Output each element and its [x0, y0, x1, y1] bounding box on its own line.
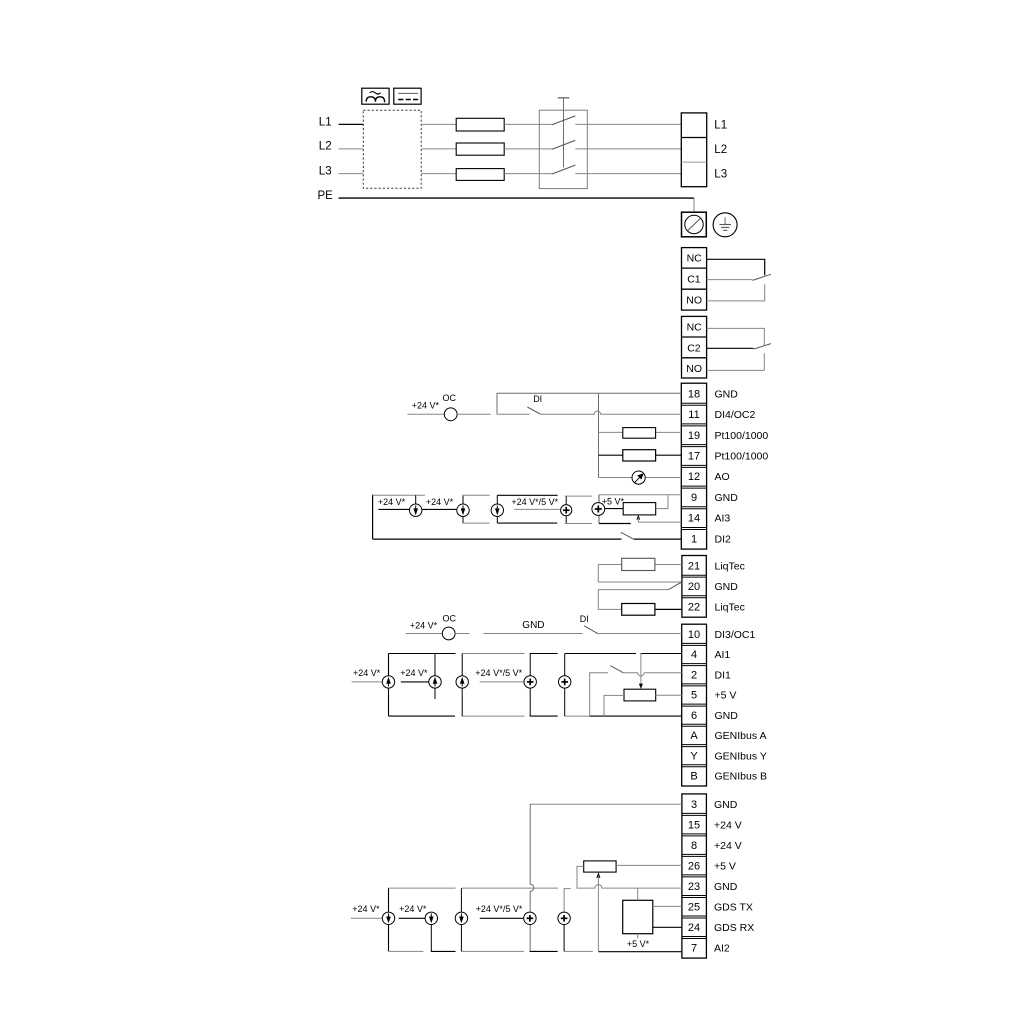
- svg-text:GND: GND: [714, 799, 738, 811]
- svg-text:GND: GND: [715, 492, 739, 504]
- svg-text:DI: DI: [533, 394, 542, 404]
- svg-text:L2: L2: [319, 140, 332, 152]
- svg-text:B: B: [690, 771, 697, 783]
- svg-text:21: 21: [688, 561, 700, 573]
- svg-text:PE: PE: [318, 190, 334, 202]
- svg-text:L2: L2: [714, 144, 727, 156]
- svg-text:+24 V*/5 V*: +24 V*/5 V*: [475, 668, 522, 678]
- svg-text:AI3: AI3: [715, 513, 731, 525]
- svg-text:14: 14: [688, 513, 700, 525]
- svg-text:+24 V*: +24 V*: [426, 497, 454, 507]
- svg-text:GND: GND: [715, 581, 739, 593]
- svg-text:LiqTec: LiqTec: [715, 561, 745, 573]
- svg-text:NO: NO: [686, 295, 702, 307]
- svg-text:GDS RX: GDS RX: [714, 922, 754, 934]
- svg-text:18: 18: [688, 388, 700, 400]
- svg-text:GND: GND: [522, 620, 544, 631]
- svg-text:C2: C2: [687, 342, 701, 354]
- svg-text:GENIbus Y: GENIbus Y: [715, 750, 767, 762]
- svg-text:DI1: DI1: [715, 669, 732, 681]
- svg-text:DI4/OC2: DI4/OC2: [715, 409, 756, 421]
- svg-text:3: 3: [691, 799, 697, 811]
- svg-text:GND: GND: [714, 881, 738, 893]
- svg-text:+24 V*/5 V*: +24 V*/5 V*: [476, 904, 523, 914]
- svg-text:GND: GND: [715, 388, 739, 400]
- svg-text:AI1: AI1: [715, 649, 731, 661]
- svg-text:GDS TX: GDS TX: [714, 901, 753, 913]
- svg-text:NO: NO: [686, 363, 702, 375]
- svg-text:+5 V*: +5 V*: [627, 939, 650, 949]
- svg-text:+24 V: +24 V: [714, 819, 742, 831]
- svg-text:+24 V: +24 V: [714, 840, 742, 852]
- svg-text:LiqTec: LiqTec: [715, 602, 745, 614]
- svg-text:AO: AO: [715, 471, 730, 483]
- svg-text:GENIbus A: GENIbus A: [715, 730, 767, 742]
- svg-text:10: 10: [688, 629, 700, 641]
- svg-text:20: 20: [688, 581, 700, 593]
- svg-text:25: 25: [688, 901, 700, 913]
- svg-text:26: 26: [688, 860, 700, 872]
- svg-text:L1: L1: [319, 116, 332, 128]
- svg-text:OC: OC: [443, 393, 457, 403]
- svg-text:19: 19: [688, 430, 700, 442]
- svg-text:DI2: DI2: [715, 533, 732, 545]
- svg-text:NC: NC: [687, 322, 703, 334]
- svg-text:+24 V*: +24 V*: [410, 621, 438, 631]
- svg-text:15: 15: [688, 819, 700, 831]
- svg-text:+24 V*: +24 V*: [399, 904, 427, 914]
- svg-text:17: 17: [688, 451, 700, 463]
- svg-text:24: 24: [688, 922, 700, 934]
- svg-text:2: 2: [691, 669, 697, 681]
- svg-text:L3: L3: [319, 166, 332, 178]
- svg-text:Pt100/1000: Pt100/1000: [715, 451, 769, 463]
- svg-text:+24 V*: +24 V*: [352, 904, 380, 914]
- svg-text:12: 12: [688, 471, 700, 483]
- svg-text:1: 1: [691, 533, 697, 545]
- svg-text:DI: DI: [580, 614, 589, 624]
- svg-text:9: 9: [691, 492, 697, 504]
- svg-text:11: 11: [688, 409, 699, 421]
- svg-text:OC: OC: [443, 613, 457, 623]
- svg-text:5: 5: [691, 690, 697, 702]
- svg-text:C1: C1: [687, 274, 701, 286]
- svg-text:+5 V*: +5 V*: [602, 497, 625, 507]
- svg-text:+5 V: +5 V: [715, 690, 737, 702]
- svg-text:Pt100/1000: Pt100/1000: [715, 430, 769, 442]
- svg-text:+24 V*: +24 V*: [378, 497, 406, 507]
- svg-text:23: 23: [688, 881, 700, 893]
- svg-text:4: 4: [691, 649, 697, 661]
- svg-text:+24 V*: +24 V*: [400, 668, 428, 678]
- svg-text:GND: GND: [715, 710, 739, 722]
- svg-text:8: 8: [691, 840, 697, 852]
- svg-text:DI3/OC1: DI3/OC1: [715, 629, 756, 641]
- svg-text:AI2: AI2: [714, 942, 730, 954]
- svg-text:L1: L1: [714, 119, 727, 131]
- svg-text:+5 V: +5 V: [714, 860, 736, 872]
- svg-text:+24 V*: +24 V*: [412, 400, 440, 410]
- svg-text:6: 6: [691, 710, 697, 722]
- svg-text:GENIbus B: GENIbus B: [715, 771, 768, 783]
- svg-text:22: 22: [688, 602, 700, 614]
- svg-text:A: A: [690, 730, 698, 742]
- svg-text:+24 V*/5 V*: +24 V*/5 V*: [511, 497, 558, 507]
- svg-text:NC: NC: [687, 253, 703, 265]
- svg-text:L3: L3: [714, 169, 727, 181]
- svg-text:7: 7: [691, 942, 697, 954]
- svg-text:Y: Y: [690, 750, 698, 762]
- svg-text:+24 V*: +24 V*: [353, 668, 381, 678]
